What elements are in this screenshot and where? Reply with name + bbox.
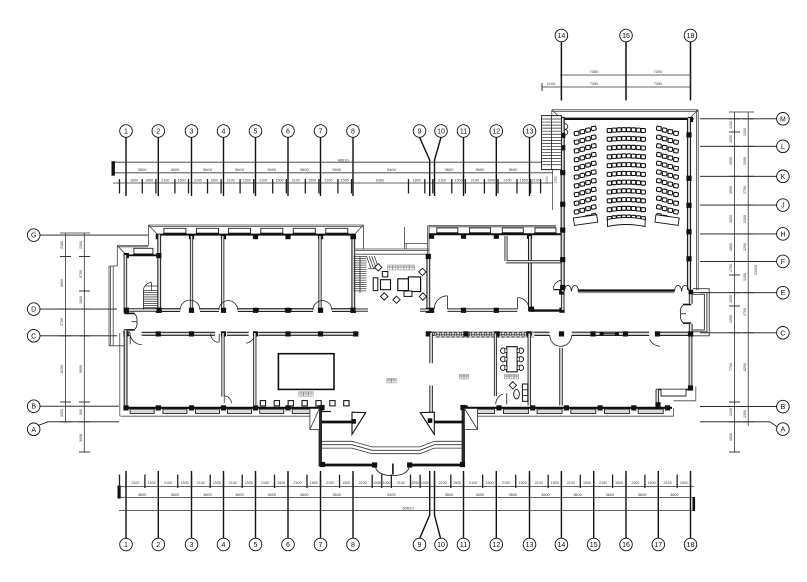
svg-text:8200: 8200 xyxy=(60,365,64,373)
svg-text:2: 2 xyxy=(156,542,160,549)
svg-text:7350: 7350 xyxy=(654,82,662,86)
svg-text:1500: 1500 xyxy=(181,481,189,485)
svg-text:A: A xyxy=(31,427,36,434)
svg-text:1500: 1500 xyxy=(551,481,559,485)
svg-text:1400: 1400 xyxy=(729,121,733,129)
svg-text:2300: 2300 xyxy=(79,241,83,249)
svg-text:3600: 3600 xyxy=(475,167,485,172)
svg-text:18: 18 xyxy=(687,33,695,40)
svg-text:2100: 2100 xyxy=(259,178,267,182)
svg-text:C: C xyxy=(780,330,785,337)
svg-text:14: 14 xyxy=(558,33,566,40)
svg-text:8: 8 xyxy=(351,542,355,549)
svg-text:3600: 3600 xyxy=(509,493,517,497)
svg-text:1050: 1050 xyxy=(411,481,419,485)
svg-text:1500: 1500 xyxy=(213,481,221,485)
svg-text:3300: 3300 xyxy=(743,215,747,223)
svg-text:2100: 2100 xyxy=(326,481,334,485)
svg-text:1750: 1750 xyxy=(729,264,733,272)
svg-text:3: 3 xyxy=(190,542,194,549)
svg-text:6300: 6300 xyxy=(376,178,384,182)
svg-text:3500: 3500 xyxy=(729,157,733,165)
svg-text:3600: 3600 xyxy=(638,493,646,497)
svg-text:5: 5 xyxy=(254,129,258,136)
svg-text:1500: 1500 xyxy=(455,178,463,182)
svg-text:3600: 3600 xyxy=(445,493,453,497)
svg-text:C: C xyxy=(31,333,36,340)
svg-text:1500: 1500 xyxy=(245,481,253,485)
svg-text:3000: 3000 xyxy=(729,215,733,223)
svg-text:1: 1 xyxy=(124,542,128,549)
svg-text:2100: 2100 xyxy=(229,481,237,485)
svg-text:2100: 2100 xyxy=(292,178,300,182)
svg-text:J: J xyxy=(781,203,785,210)
svg-text:2800: 2800 xyxy=(729,243,733,251)
svg-text:H: H xyxy=(780,231,785,238)
svg-text:48610: 48610 xyxy=(337,157,349,162)
svg-text:11: 11 xyxy=(460,129,467,136)
svg-text:3500: 3500 xyxy=(729,186,733,194)
svg-text:5: 5 xyxy=(254,542,258,549)
svg-text:3600: 3600 xyxy=(300,493,308,497)
svg-text:G: G xyxy=(31,233,36,240)
svg-text:2100: 2100 xyxy=(547,82,555,86)
svg-text:1500: 1500 xyxy=(308,178,316,182)
svg-text:1500: 1500 xyxy=(210,178,218,182)
svg-text:1800: 1800 xyxy=(413,178,421,182)
svg-text:2100: 2100 xyxy=(359,481,367,485)
svg-text:1500: 1500 xyxy=(342,481,350,485)
svg-text:3600: 3600 xyxy=(445,167,455,172)
svg-text:2100: 2100 xyxy=(664,481,672,485)
svg-text:4700: 4700 xyxy=(743,308,747,316)
svg-text:2100: 2100 xyxy=(324,178,332,182)
svg-text:7700: 7700 xyxy=(729,363,733,371)
svg-text:63610: 63610 xyxy=(402,505,414,510)
svg-text:1500: 1500 xyxy=(520,178,528,182)
svg-text:2100: 2100 xyxy=(227,178,235,182)
svg-text:2200: 2200 xyxy=(729,408,733,416)
svg-text:3600: 3600 xyxy=(171,493,179,497)
svg-text:3600: 3600 xyxy=(606,493,614,497)
svg-text:6: 6 xyxy=(286,542,290,549)
svg-text:2100: 2100 xyxy=(567,481,575,485)
svg-text:13: 13 xyxy=(526,129,534,136)
svg-text:2100: 2100 xyxy=(164,481,172,485)
svg-text:1800: 1800 xyxy=(130,178,138,182)
svg-text:1500: 1500 xyxy=(485,481,493,485)
svg-text:2100: 2100 xyxy=(197,481,205,485)
svg-text:2100: 2100 xyxy=(471,178,479,182)
svg-text:2700: 2700 xyxy=(743,186,747,194)
svg-text:9: 9 xyxy=(418,129,422,136)
svg-text:7350: 7350 xyxy=(590,82,598,86)
svg-text:L: L xyxy=(781,144,785,151)
svg-text:2100: 2100 xyxy=(194,178,202,182)
svg-text:3600: 3600 xyxy=(235,167,245,172)
svg-text:1: 1 xyxy=(124,129,128,136)
svg-text:1650: 1650 xyxy=(145,178,153,182)
svg-text:1050: 1050 xyxy=(373,481,381,485)
svg-text:4: 4 xyxy=(222,129,226,136)
svg-text:3: 3 xyxy=(190,129,194,136)
svg-text:2200: 2200 xyxy=(729,315,733,323)
svg-text:3600: 3600 xyxy=(268,493,276,497)
svg-text:3600: 3600 xyxy=(508,167,518,172)
svg-text:3600: 3600 xyxy=(541,493,549,497)
svg-text:3200: 3200 xyxy=(743,273,747,281)
svg-text:3300: 3300 xyxy=(743,157,747,165)
svg-text:3600: 3600 xyxy=(670,493,678,497)
svg-text:1500: 1500 xyxy=(487,178,495,182)
svg-text:2100: 2100 xyxy=(161,178,169,182)
svg-text:3600: 3600 xyxy=(300,167,310,172)
svg-text:16: 16 xyxy=(622,33,630,40)
svg-text:1500: 1500 xyxy=(648,481,656,485)
svg-text:1500: 1500 xyxy=(277,481,285,485)
svg-text:33300: 33300 xyxy=(754,265,758,275)
svg-text:17: 17 xyxy=(654,542,662,549)
svg-text:1500: 1500 xyxy=(276,178,284,182)
svg-text:1050: 1050 xyxy=(421,481,429,485)
svg-text:2100: 2100 xyxy=(397,481,405,485)
svg-text:3600: 3600 xyxy=(170,167,180,172)
svg-text:2700: 2700 xyxy=(60,318,64,326)
svg-text:3600: 3600 xyxy=(332,167,342,172)
svg-text:2100: 2100 xyxy=(439,481,447,485)
svg-text:7350: 7350 xyxy=(590,69,600,74)
svg-text:6800: 6800 xyxy=(60,279,64,287)
svg-text:1500: 1500 xyxy=(680,481,688,485)
svg-text:2: 2 xyxy=(156,129,160,136)
svg-text:13: 13 xyxy=(526,542,534,549)
svg-text:10: 10 xyxy=(437,542,445,549)
svg-text:3300: 3300 xyxy=(743,128,747,136)
svg-text:2100: 2100 xyxy=(294,481,302,485)
svg-text:1500: 1500 xyxy=(60,409,64,417)
svg-text:1500: 1500 xyxy=(243,178,251,182)
svg-text:7: 7 xyxy=(319,542,323,549)
svg-text:12: 12 xyxy=(492,129,500,136)
svg-text:8200: 8200 xyxy=(743,363,747,371)
svg-text:1050: 1050 xyxy=(383,481,391,485)
svg-text:E: E xyxy=(781,290,786,297)
svg-text:11: 11 xyxy=(460,542,467,549)
svg-text:9: 9 xyxy=(418,542,422,549)
svg-text:10: 10 xyxy=(437,129,445,136)
svg-text:1500: 1500 xyxy=(615,481,623,485)
svg-text:3600: 3600 xyxy=(203,167,213,172)
svg-text:3600: 3600 xyxy=(203,493,211,497)
svg-text:B: B xyxy=(31,404,36,411)
svg-text:6700: 6700 xyxy=(79,270,83,278)
svg-text:1500: 1500 xyxy=(729,135,733,143)
svg-text:B: B xyxy=(781,404,786,411)
svg-text:2100: 2100 xyxy=(631,481,639,485)
svg-text:1800: 1800 xyxy=(729,433,733,441)
svg-text:3600: 3600 xyxy=(138,167,148,172)
svg-text:8: 8 xyxy=(351,129,355,136)
svg-text:M: M xyxy=(780,116,786,123)
svg-text:900: 900 xyxy=(79,409,83,415)
svg-text:1800: 1800 xyxy=(79,296,83,304)
svg-text:1500: 1500 xyxy=(341,178,349,182)
svg-text:D: D xyxy=(31,307,36,314)
svg-text:3200: 3200 xyxy=(743,243,747,251)
svg-text:2100: 2100 xyxy=(469,481,477,485)
svg-text:2100: 2100 xyxy=(502,481,510,485)
svg-text:6: 6 xyxy=(286,129,290,136)
svg-text:1500: 1500 xyxy=(583,481,591,485)
svg-text:7: 7 xyxy=(319,129,323,136)
svg-text:1500: 1500 xyxy=(729,295,733,303)
svg-text:9400: 9400 xyxy=(387,493,395,497)
svg-text:1500: 1500 xyxy=(148,481,156,485)
svg-text:1500: 1500 xyxy=(178,178,186,182)
svg-text:16: 16 xyxy=(622,542,630,549)
svg-text:3600: 3600 xyxy=(138,493,146,497)
svg-text:1500: 1500 xyxy=(453,481,461,485)
svg-text:2100: 2100 xyxy=(535,481,543,485)
svg-text:2100: 2100 xyxy=(438,178,446,182)
svg-text:18: 18 xyxy=(687,542,695,549)
svg-text:K: K xyxy=(781,174,786,181)
svg-text:2100: 2100 xyxy=(532,178,540,182)
svg-text:3600: 3600 xyxy=(235,493,243,497)
svg-text:3600: 3600 xyxy=(333,493,341,497)
svg-text:1500: 1500 xyxy=(310,481,318,485)
svg-text:3600: 3600 xyxy=(573,493,581,497)
svg-text:2300: 2300 xyxy=(60,241,64,249)
svg-text:3608: 3608 xyxy=(79,434,83,442)
svg-text:2100: 2100 xyxy=(545,176,549,184)
svg-text:2100: 2100 xyxy=(261,481,269,485)
svg-text:1500: 1500 xyxy=(519,481,527,485)
svg-text:1300: 1300 xyxy=(743,410,747,418)
svg-text:12: 12 xyxy=(492,542,500,549)
svg-text:4: 4 xyxy=(222,542,226,549)
svg-text:F: F xyxy=(781,259,785,266)
svg-text:3600: 3600 xyxy=(267,167,277,172)
svg-text:1750: 1750 xyxy=(554,176,558,184)
svg-text:2100: 2100 xyxy=(504,178,512,182)
svg-text:14: 14 xyxy=(558,542,566,549)
svg-text:9400: 9400 xyxy=(387,167,397,172)
svg-text:2100: 2100 xyxy=(131,481,139,485)
svg-text:A: A xyxy=(781,427,786,434)
svg-text:9900: 9900 xyxy=(79,365,83,373)
svg-text:7200: 7200 xyxy=(654,69,664,74)
svg-text:3600: 3600 xyxy=(476,493,484,497)
svg-text:15: 15 xyxy=(590,542,598,549)
svg-text:2100: 2100 xyxy=(599,481,607,485)
